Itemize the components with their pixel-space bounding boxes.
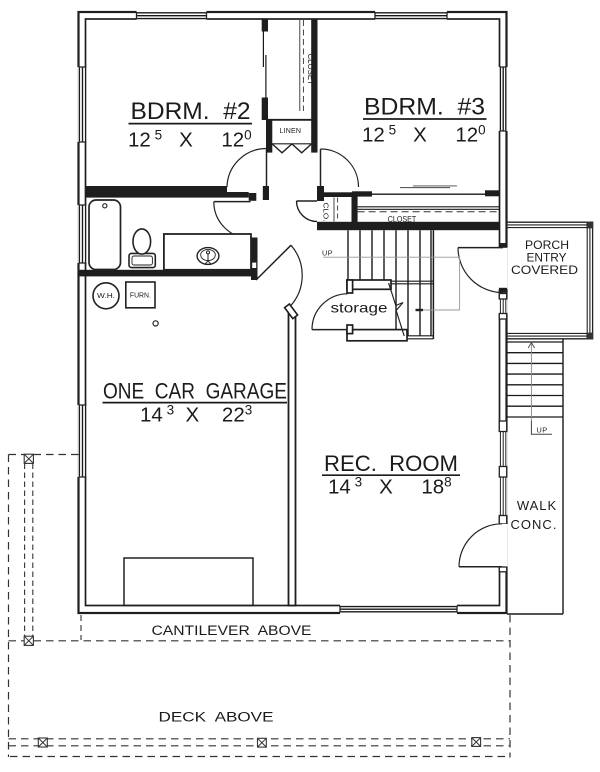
svg-text:UP: UP — [537, 426, 548, 435]
svg-text:BDRM. #3: BDRM. #3 — [364, 94, 485, 121]
svg-text:FURN.: FURN. — [130, 292, 151, 299]
svg-text:LINEN: LINEN — [279, 128, 301, 135]
svg-text:CONC.: CONC. — [511, 517, 558, 532]
svg-text:COVERED: COVERED — [511, 263, 578, 277]
svg-text:12 5 X 120: 12 5 X 120 — [128, 128, 252, 152]
svg-text:14 3 X 188: 14 3 X 188 — [328, 475, 452, 499]
svg-text:DECK ABOVE: DECK ABOVE — [159, 710, 274, 725]
svg-text:BDRM. #2: BDRM. #2 — [131, 98, 251, 125]
svg-text:ONE CAR GARAGE: ONE CAR GARAGE — [103, 379, 287, 404]
svg-text:W.H.: W.H. — [97, 293, 115, 300]
svg-text:UP: UP — [322, 248, 333, 257]
svg-text:CLO.: CLO. — [322, 203, 331, 222]
svg-text:WALK: WALK — [517, 498, 557, 513]
svg-text:REC. ROOM: REC. ROOM — [324, 451, 458, 476]
svg-text:storage: storage — [331, 301, 388, 316]
svg-text:CLOSET: CLOSET — [306, 54, 316, 86]
svg-text:CANTILEVER ABOVE: CANTILEVER ABOVE — [152, 623, 312, 638]
svg-text:14 3 X 223: 14 3 X 223 — [140, 403, 252, 427]
svg-text:12 5 X 120: 12 5 X 120 — [362, 123, 486, 147]
